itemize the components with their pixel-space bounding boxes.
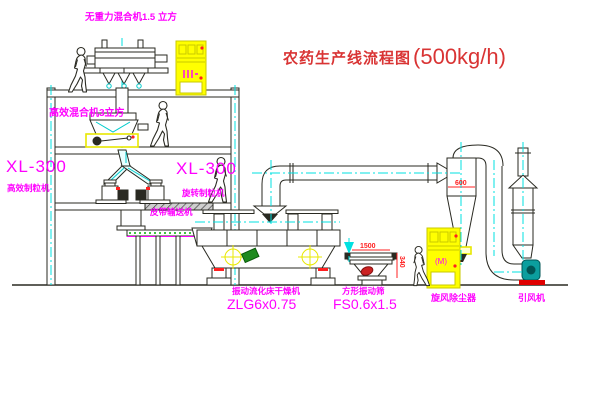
dimension-sieve-340: 340 — [398, 256, 405, 268]
label-gravity-free-mixer: 无重力混合机1.5 立方 — [85, 13, 177, 23]
label-granulator-left-model: XL-300 — [6, 158, 67, 175]
title-capacity: (500kg/h) — [413, 44, 506, 70]
dimension-sieve-1500: 1500 — [360, 243, 376, 250]
label-cabinet-mark: (M) — [435, 258, 447, 266]
exhaust-duct — [254, 163, 449, 223]
label-cyclone: 旋风除尘器 — [431, 294, 476, 303]
label-belt-conveyor: 皮带输送机 — [150, 208, 193, 217]
title-text: 农药生产线流程图 — [283, 47, 411, 68]
label-fan: 引风机 — [518, 294, 545, 303]
granulator-center — [136, 180, 170, 204]
fluid-bed-dryer — [192, 210, 354, 285]
dimension-cyclone-600: 600 — [455, 180, 467, 187]
label-granulator-center-model: XL-300 — [176, 160, 237, 177]
control-cabinet-top — [176, 41, 206, 95]
granulator-left — [96, 180, 128, 204]
label-dryer-name: 振动流化床干燥机 — [232, 287, 300, 296]
vibrating-sieve — [345, 250, 397, 285]
label-sieve-name: 方形振动筛 — [342, 287, 385, 296]
y-splitter-chute — [104, 150, 156, 184]
drawing-title: 农药生产线流程图 (500kg/h) — [283, 44, 506, 70]
discharge-chute — [117, 210, 145, 230]
worker-second-floor — [151, 102, 169, 147]
label-granulator-center-name: 旋转制粒机 — [182, 189, 225, 198]
label-high-efficiency-mixer: 高效混合机3立方 — [49, 109, 125, 119]
worker-roof — [69, 48, 87, 93]
label-dryer-model: ZLG6x0.75 — [227, 297, 296, 311]
cad-flow-diagram: 农药生产线流程图 (500kg/h) 无重力混合机1.5 立方 高效混合机3立方… — [0, 0, 600, 403]
label-sieve-model: FS0.6x1.5 — [333, 297, 397, 311]
induced-draft-fan — [519, 260, 545, 285]
label-granulator-left-name: 高效制粒机 — [7, 184, 50, 193]
